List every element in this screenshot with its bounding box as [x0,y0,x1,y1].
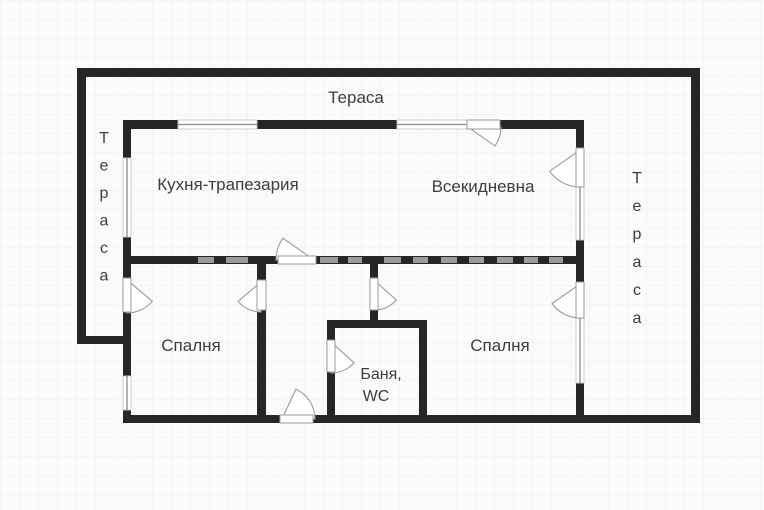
wall [327,320,427,328]
wall-dash [320,257,338,263]
window [576,318,584,383]
bathroom-label-line1: Баня, [360,366,401,383]
floor-plan: Тераса Тераса Тераса Кухня-трапезария Вс… [0,0,764,510]
wall [419,320,427,423]
door-leaf [370,278,378,310]
wall-dash [497,257,513,263]
kitchen-dining-label: Кухня-трапезария [157,175,299,194]
door-leaf [280,415,313,423]
wall [123,415,700,423]
living-room-label: Всекидневна [432,177,535,196]
door-leaf [257,280,266,310]
wall [77,68,86,344]
wall-dash [384,257,401,263]
wall [77,336,131,344]
door-leaf [278,256,316,264]
wall-dash [226,257,248,263]
door-leaf [576,282,584,318]
wall-dash [549,257,563,263]
window [123,376,131,410]
window [576,187,584,240]
wall-dash [441,257,457,263]
wall-dash [524,257,538,263]
wall-dash [413,257,428,263]
wall [691,68,700,423]
bedroom-left-label: Спалня [161,336,220,355]
window [178,120,257,129]
bathroom-label-line2: WC [363,388,390,405]
door-leaf [576,148,584,187]
window [123,158,131,237]
floor-plan-svg: Тераса Тераса Тераса Кухня-трапезария Вс… [0,0,764,510]
window [397,120,467,129]
bedroom-right-label: Спалня [470,336,529,355]
wall-dash [469,257,484,263]
door-leaf [467,120,500,129]
door-leaf [327,340,335,372]
wall [77,68,700,77]
terrace-top-label: Тераса [328,88,384,107]
door-leaf [123,278,131,312]
wall-dash [198,257,214,263]
wall-dash [348,257,362,263]
